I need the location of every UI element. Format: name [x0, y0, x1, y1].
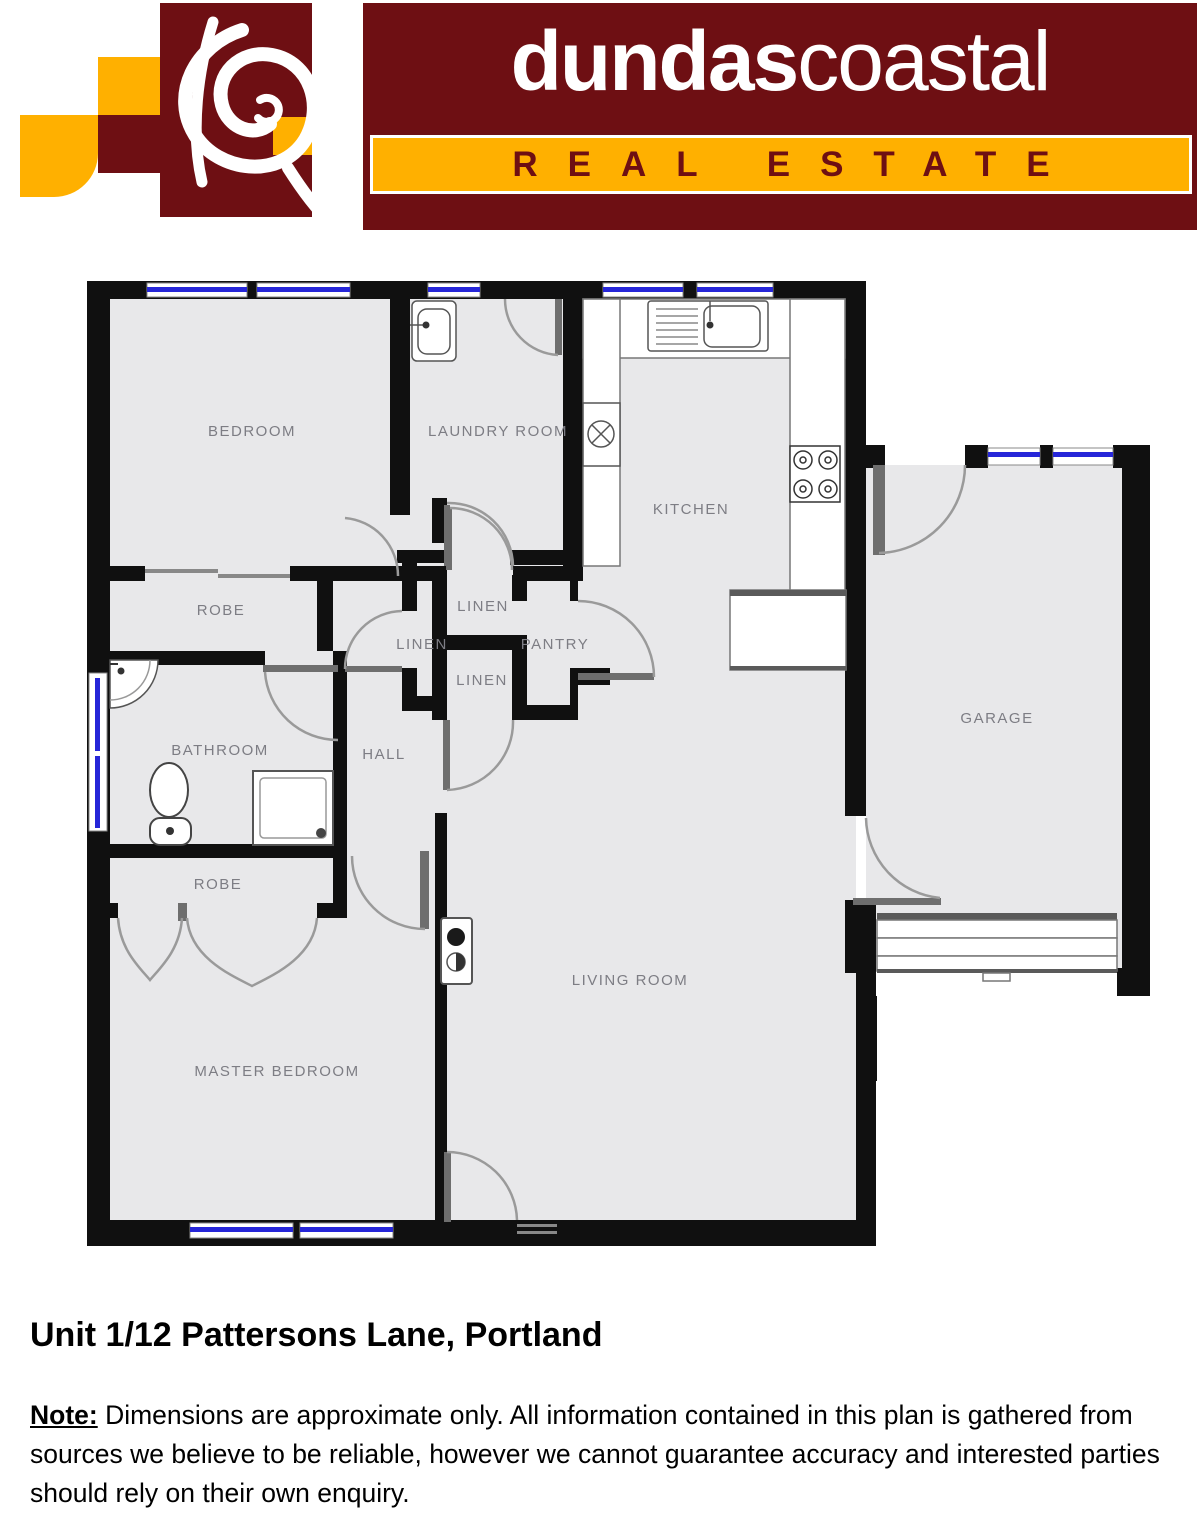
shower-icon: [253, 771, 333, 845]
master-bedroom-window: [190, 1223, 393, 1238]
room-label-robe-top: ROBE: [197, 602, 246, 619]
brand-tagline: REAL ESTATE: [482, 145, 1079, 185]
garage-roller-door-icon: [877, 913, 1117, 981]
room-label-master: MASTER BEDROOM: [194, 1063, 359, 1080]
room-label-linen-left: LINEN: [396, 636, 448, 653]
room-label-bathroom: BATHROOM: [171, 742, 269, 759]
floor-plan: BEDROOM LAUNDRY ROOM KITCHEN GARAGE ROBE…: [0, 268, 1200, 1278]
disclaimer-note-body: Dimensions are approximate only. All inf…: [30, 1400, 1160, 1508]
flyer-page: dundascoastal REAL ESTATE: [0, 0, 1200, 1530]
brand-block: dundascoastal REAL ESTATE: [363, 3, 1197, 230]
brand-name-light: coastal: [797, 14, 1049, 108]
room-label-laundry: LAUNDRY ROOM: [428, 423, 568, 440]
room-label-garage: GARAGE: [960, 710, 1033, 727]
room-label-kitchen: KITCHEN: [653, 501, 729, 518]
kitchen-sink-icon: [648, 301, 768, 351]
disclaimer-note-label: Note:: [30, 1400, 98, 1430]
logo-spiral-icon: [110, 0, 370, 240]
laundry-sink-icon: [410, 301, 456, 361]
toilet-icon: [150, 763, 191, 845]
dishwasher-icon: [583, 403, 620, 466]
brand-name-bold: dundas: [511, 14, 798, 108]
brand-name: dundascoastal: [363, 13, 1197, 133]
stove-icon: [790, 446, 840, 502]
header: dundascoastal REAL ESTATE: [0, 0, 1200, 240]
room-label-living: LIVING ROOM: [572, 972, 689, 989]
laundry-window: [428, 283, 480, 297]
room-label-bedroom: BEDROOM: [208, 423, 296, 440]
logo-gold-square-2: [20, 115, 98, 197]
room-label-hall: HALL: [362, 746, 406, 763]
room-label-robe-master: ROBE: [194, 876, 243, 893]
brand-tagline-band: REAL ESTATE: [370, 135, 1192, 194]
room-label-pantry: PANTRY: [521, 636, 589, 653]
hot-water-unit-icon: [441, 918, 472, 984]
bathroom-window: [89, 673, 107, 831]
property-title: Unit 1/12 Pattersons Lane, Portland: [30, 1316, 1170, 1355]
room-label-linen-bottom: LINEN: [456, 672, 508, 689]
room-label-linen-top: LINEN: [457, 598, 509, 615]
disclaimer-note: Note: Dimensions are approximate only. A…: [30, 1396, 1175, 1513]
